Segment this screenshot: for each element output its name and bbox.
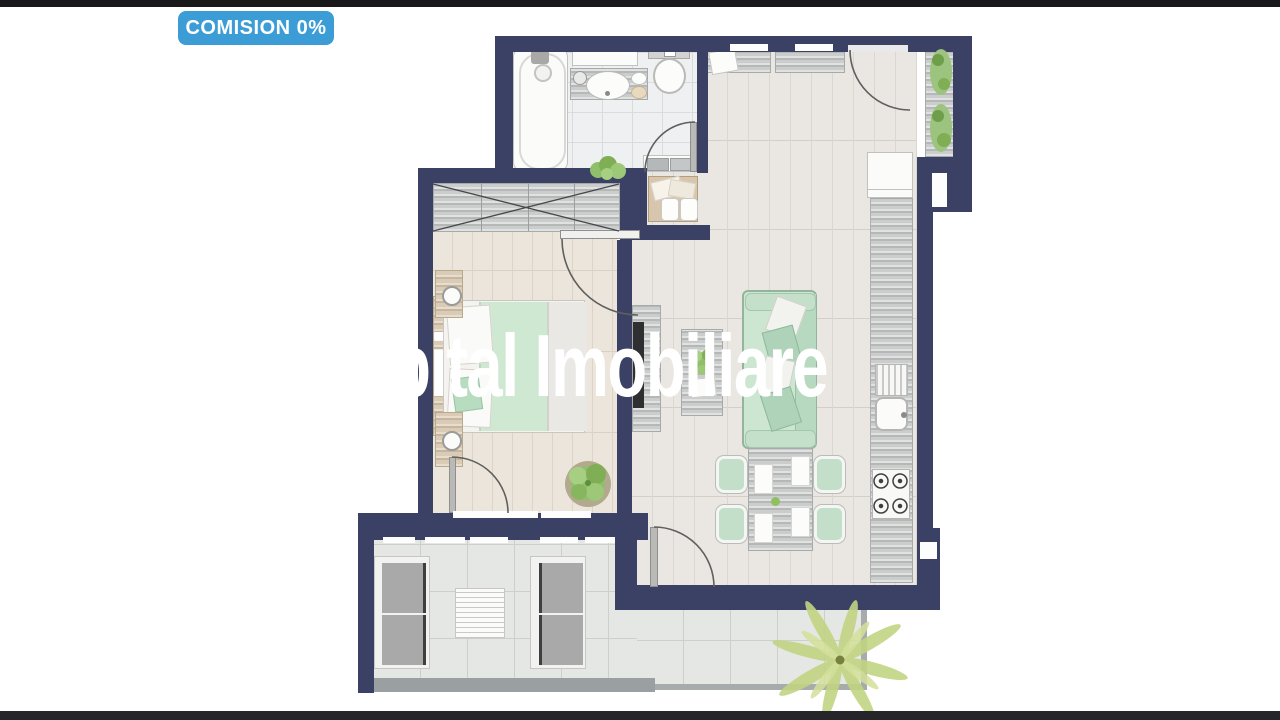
placemat <box>791 456 810 486</box>
balcony-door-opening <box>453 511 538 518</box>
wardrobe-divider <box>481 184 482 231</box>
towel-roll <box>670 158 692 171</box>
wall-segment <box>953 36 972 160</box>
window-opening <box>585 537 615 543</box>
top-bar <box>0 0 1280 7</box>
bathtub-drain <box>534 64 552 82</box>
dining-chair <box>814 456 845 493</box>
shaft-opening <box>932 173 947 207</box>
sink-faucet <box>901 412 907 418</box>
bathtub <box>513 47 568 172</box>
kitchen-sink <box>875 397 908 431</box>
towel-bench <box>643 155 695 172</box>
nightstand-lamp <box>442 286 462 306</box>
laundry-basket <box>648 176 698 222</box>
bedroom-door-leaf <box>560 230 640 239</box>
placemat <box>754 464 773 494</box>
fridge <box>867 152 913 198</box>
wardrobe <box>433 183 620 232</box>
wall-segment <box>647 225 710 240</box>
bottom-bar <box>0 711 1280 720</box>
table-centerpiece <box>771 497 780 506</box>
wall-segment <box>637 585 940 610</box>
placemat <box>754 513 773 543</box>
balcony-sofa-cushion <box>539 563 583 613</box>
window-opening <box>383 537 415 543</box>
balcony-table <box>455 588 505 638</box>
stove <box>872 469 910 519</box>
terrace-edge-right <box>861 610 867 690</box>
wardrobe-divider <box>528 184 529 231</box>
wall-segment <box>917 528 940 610</box>
entry-door-threshold <box>848 45 908 52</box>
vanity-faucet <box>605 91 610 96</box>
terrace-edge-bottom <box>655 684 867 690</box>
fridge-door-line <box>868 189 912 190</box>
balcony-sofa <box>530 556 586 669</box>
floor-terrace <box>637 610 866 687</box>
sofa-armrest <box>745 430 816 448</box>
watermark-text: Capital Imobiliare <box>311 322 827 410</box>
wall-segment <box>358 513 374 693</box>
vanity-soap-dish <box>573 71 587 85</box>
dining-chair <box>716 505 747 543</box>
window-opening <box>541 511 591 518</box>
vanity-item-white <box>631 72 647 85</box>
terrace-door-leaf <box>650 527 658 587</box>
balcony-sofa-cushion <box>382 563 426 613</box>
placemat <box>791 507 810 537</box>
dining-table <box>748 448 813 551</box>
commission-badge-label: COMISION 0% <box>185 17 326 40</box>
bathroom-vanity <box>570 68 648 100</box>
storage-bin <box>680 198 698 221</box>
bathtub-faucet <box>531 50 549 64</box>
storage-bin <box>661 198 679 221</box>
window-opening <box>730 44 768 51</box>
plant-shelf <box>925 48 955 157</box>
balcony-sofa-cushion <box>539 615 583 665</box>
commission-badge: COMISION 0% <box>178 11 334 45</box>
wall-segment <box>917 212 933 532</box>
window-opening <box>795 44 833 51</box>
window-opening <box>540 537 578 543</box>
balcony-railing <box>362 678 655 692</box>
nightstand-lamp <box>442 431 462 451</box>
bedroom-balcony-door-leaf <box>449 457 456 513</box>
bathroom-door-leaf <box>690 122 697 172</box>
balcony-sofa <box>374 556 430 669</box>
balcony-sofa-cushion <box>382 615 426 665</box>
dish-rack <box>875 364 908 396</box>
toilet-bowl <box>653 58 686 94</box>
dining-chair <box>814 505 845 543</box>
wall-segment <box>615 537 637 610</box>
wall-segment <box>697 36 708 173</box>
towel-roll <box>647 158 669 171</box>
dining-chair <box>716 456 747 493</box>
window-opening <box>470 537 508 543</box>
wall-segment <box>495 36 513 172</box>
wardrobe-divider <box>574 184 575 231</box>
shaft-opening <box>920 542 937 559</box>
nightstand <box>435 270 463 318</box>
wall-segment <box>418 168 622 183</box>
window-opening <box>425 537 465 543</box>
floor-plan: Capital Imobiliare <box>0 0 1280 720</box>
vanity-item-beige <box>631 86 647 99</box>
